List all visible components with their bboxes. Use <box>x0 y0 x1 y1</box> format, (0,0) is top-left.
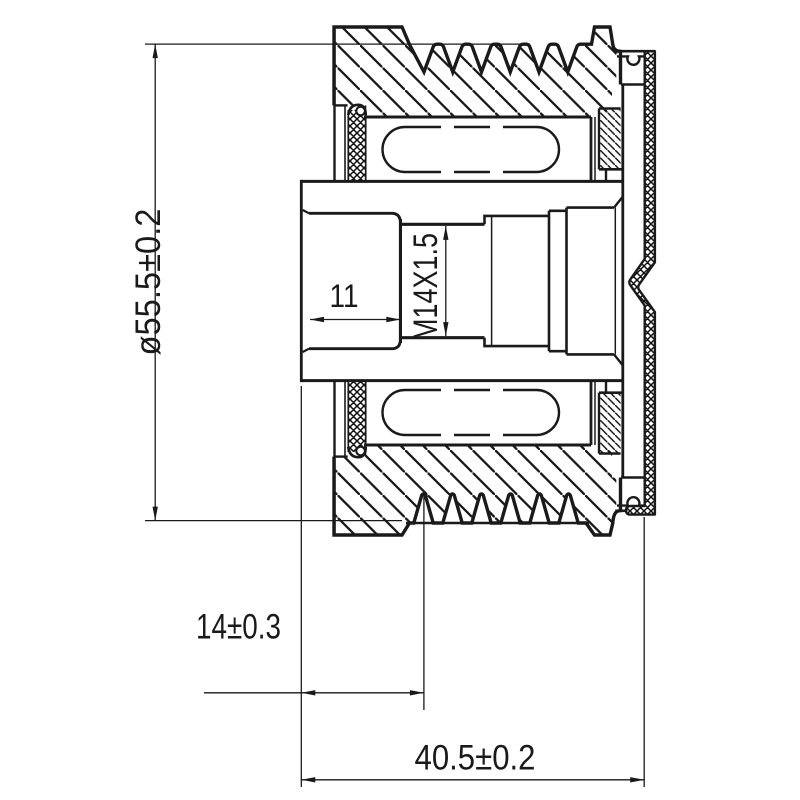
svg-text:11: 11 <box>330 278 359 314</box>
svg-text:M14X1.5: M14X1.5 <box>407 233 445 341</box>
svg-text:40.5±0.2: 40.5±0.2 <box>415 739 536 778</box>
svg-text:14±0.3: 14±0.3 <box>196 608 281 647</box>
svg-text:ø55.5±0.2: ø55.5±0.2 <box>129 209 168 356</box>
